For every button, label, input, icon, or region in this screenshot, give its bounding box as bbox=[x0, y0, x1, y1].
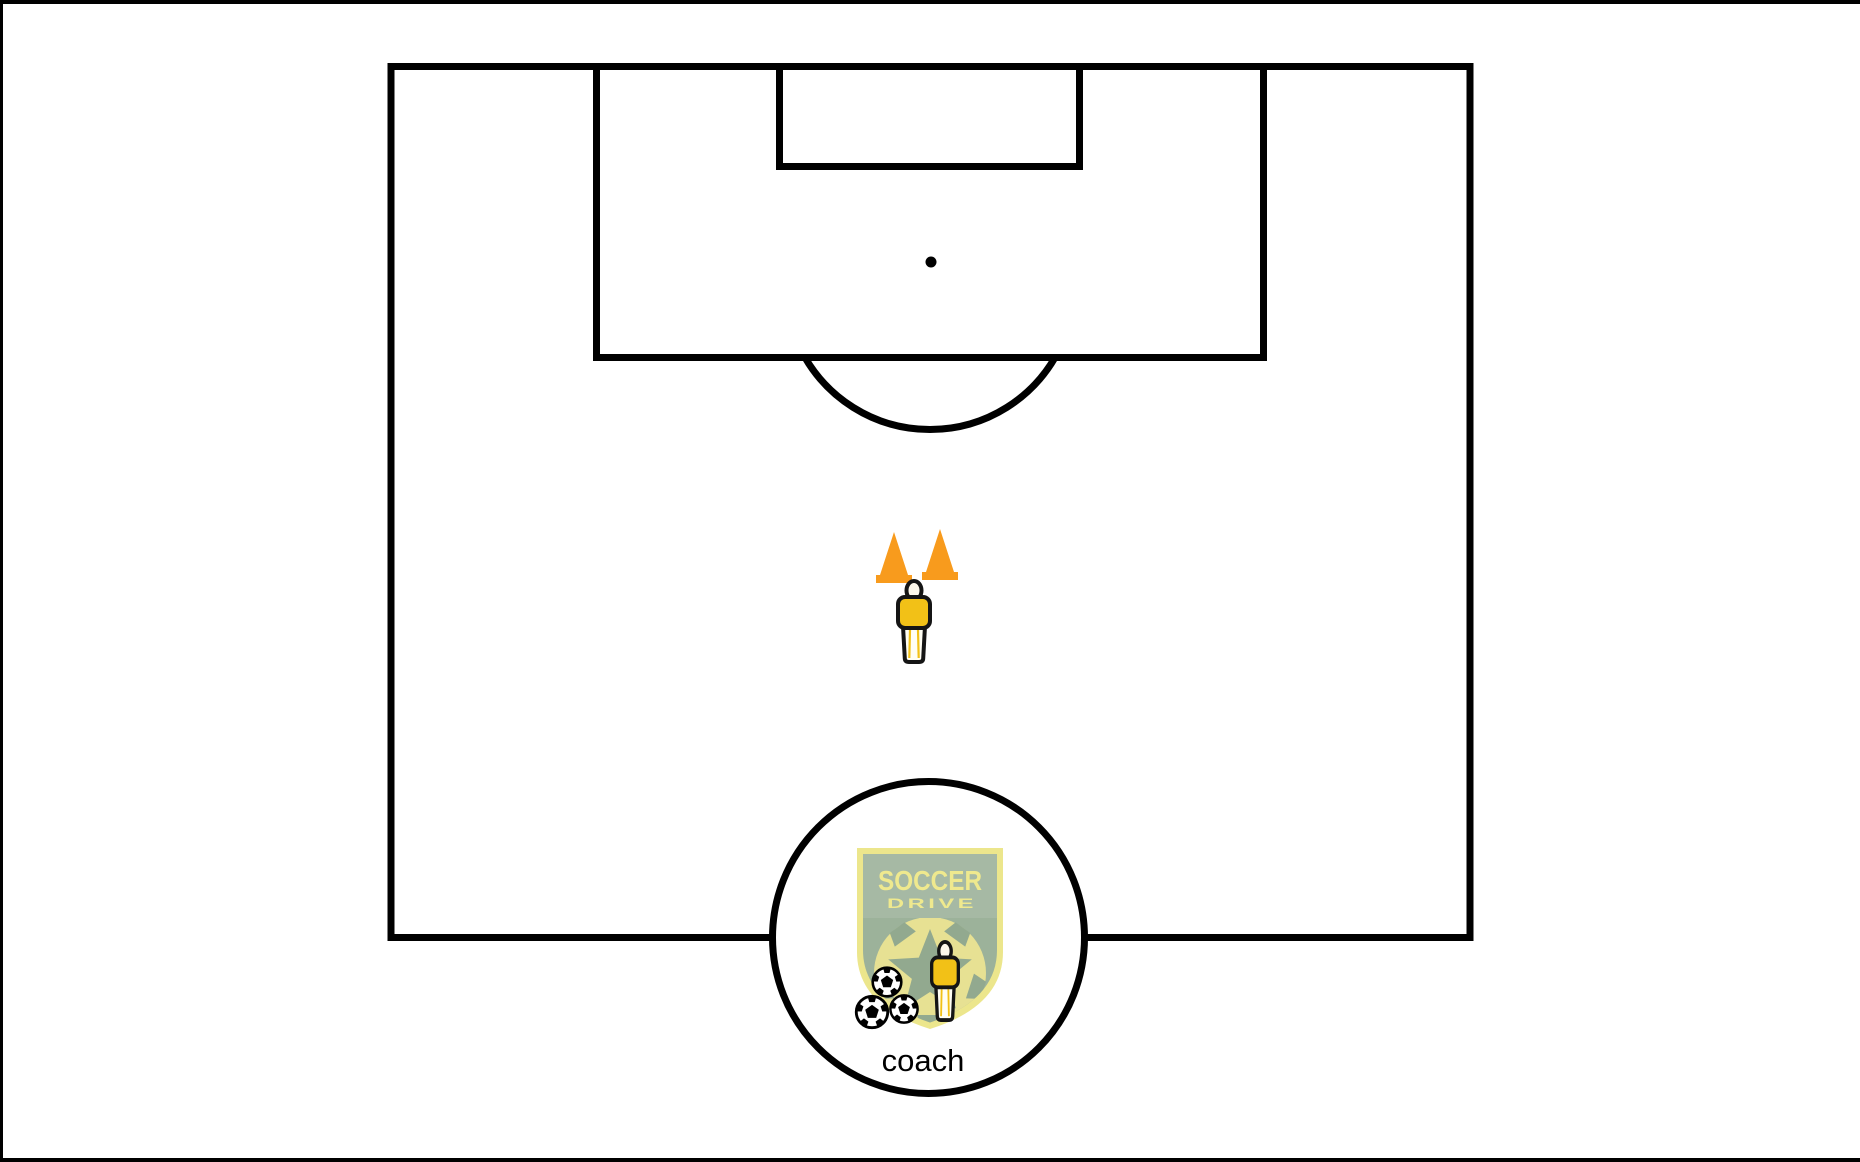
penalty-box bbox=[597, 67, 1264, 358]
penalty-spot bbox=[926, 257, 937, 268]
cone-icon[interactable] bbox=[876, 532, 912, 583]
soccer-ball-icon bbox=[890, 995, 918, 1022]
cone-icon[interactable] bbox=[922, 529, 958, 580]
frame-left-edge bbox=[0, 0, 3, 1162]
logo-subtitle: DRIVE bbox=[887, 896, 977, 911]
player-marker[interactable] bbox=[898, 581, 930, 662]
drill-diagram: SOCCER DRIVE coach bbox=[0, 0, 1860, 1162]
cone-markers bbox=[876, 529, 958, 583]
goal-box bbox=[780, 67, 1080, 167]
frame-bottom-edge bbox=[0, 1158, 1860, 1162]
frame-top-edge bbox=[0, 0, 1860, 4]
drill-diagram-canvas: SOCCER DRIVE coach bbox=[0, 0, 1860, 1162]
penalty-arc bbox=[805, 358, 1055, 430]
logo-title: SOCCER bbox=[878, 865, 982, 896]
soccer-ball-icon bbox=[856, 996, 889, 1027]
soccerdrive-logo: SOCCER DRIVE bbox=[856, 848, 1003, 1029]
coach-label: coach bbox=[882, 1043, 965, 1078]
soccer-ball-icon bbox=[872, 968, 902, 997]
coach-marker[interactable]: SOCCER DRIVE coach bbox=[773, 782, 1085, 1094]
